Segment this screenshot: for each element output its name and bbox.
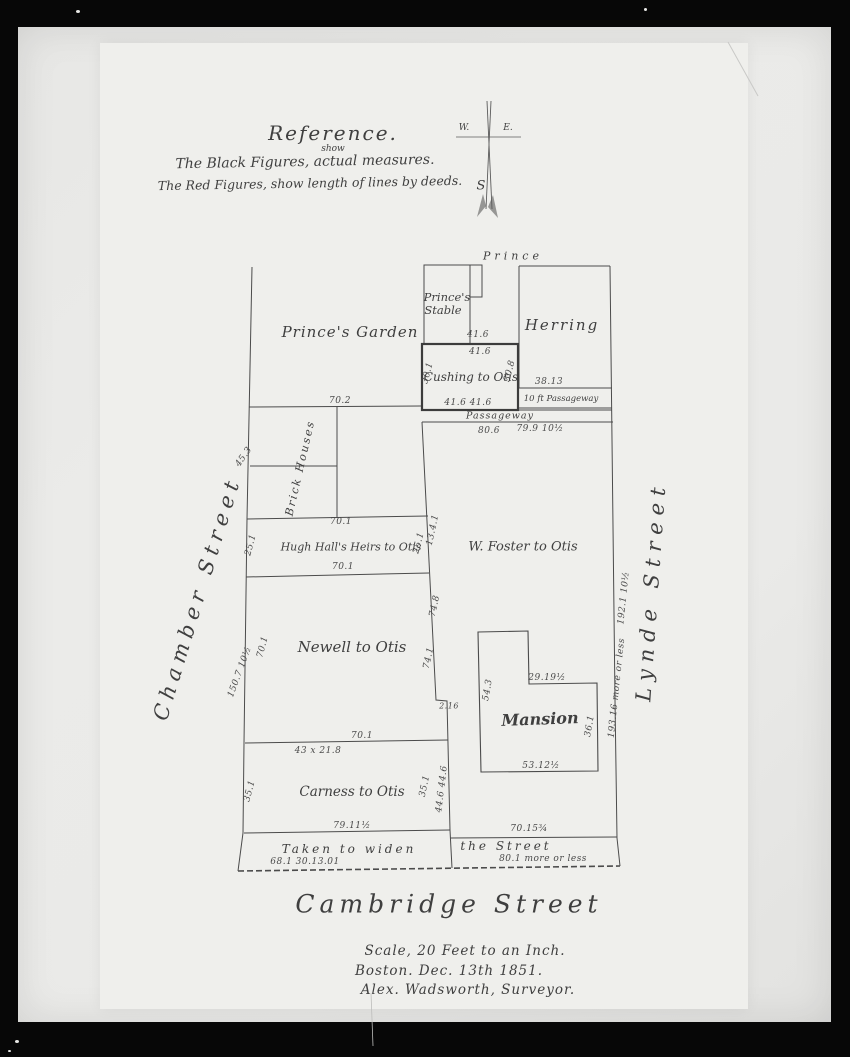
measure-taken-right-figures: 80.1 more or less: [499, 854, 587, 864]
reference-title: Reference.: [268, 121, 398, 145]
scanned-survey-photo: Reference. show The Black Figures, actua…: [0, 0, 850, 1057]
compass-west-label: W.: [459, 123, 470, 133]
measure-garden-line: 70.2: [329, 396, 351, 406]
parcel-herring: Herring: [525, 316, 599, 334]
street-taking-line1: Taken to widen: [282, 842, 417, 856]
measure-cushing-top-red: 41.6: [469, 347, 491, 357]
parcel-hugh-hall: Hugh Hall's Heirs to Otis: [281, 541, 422, 554]
measure-mansion-notch: 29.19½: [528, 673, 566, 683]
mansion-outline: [478, 631, 598, 772]
measure-taken-left-figures: 68.1 30.13.01: [270, 857, 339, 867]
parcel-mansion: Mansion: [501, 708, 579, 730]
surveyor-signature: Alex. Wadsworth, Surveyor.: [361, 982, 575, 998]
parcel-passageway-10ft: 10 ft Passageway: [524, 394, 599, 404]
compass-east-label: E.: [503, 123, 512, 133]
scale-note: Scale, 20 Feet to an Inch.: [365, 943, 566, 959]
measure-carness-bottom: 79.11½: [333, 821, 371, 831]
parcel-carness: Carness to Otis: [299, 784, 404, 800]
measure-foster-top-black: 80.6: [478, 426, 500, 436]
measure-newell-bottom: 70.1: [351, 731, 373, 741]
measure-cushing-bottom: 41.6 41.6: [444, 398, 491, 408]
measure-herring-bottom: 38.13: [535, 377, 563, 387]
parcel-princes-garden: Prince's Garden: [282, 323, 419, 341]
measure-cushing-top-black: 41.6: [467, 330, 489, 340]
measure-foster-top-red: 79.9 10½: [516, 424, 563, 434]
parcel-newell: Newell to Otis: [298, 638, 407, 656]
measure-foster-bottom: 70.15¾: [510, 824, 548, 834]
measure-mansion-bottom: 53.12½: [522, 761, 560, 771]
parcel-foster: W. Foster to Otis: [468, 540, 577, 555]
measure-hugh-bottom: 70.1: [332, 562, 354, 572]
parcel-princes-stable-line1: Prince's: [424, 290, 471, 304]
measure-hugh-top: 70.1: [330, 517, 352, 527]
prince-street-label: Prince: [483, 250, 543, 263]
cambridge-street-label: Cambridge Street: [295, 890, 602, 919]
street-taking-line2: the Street: [460, 839, 551, 853]
measure-newell-jog: 2.16: [439, 702, 459, 711]
parcel-princes-stable-line2: Stable: [424, 303, 461, 317]
dateline: Boston. Dec. 13th 1851.: [355, 963, 543, 979]
parcel-passageway: Passageway: [466, 411, 534, 422]
compass-needle: [456, 101, 521, 218]
measure-carness-top: 43 x 21.8: [295, 746, 342, 756]
compass-south-label: S: [477, 179, 486, 194]
